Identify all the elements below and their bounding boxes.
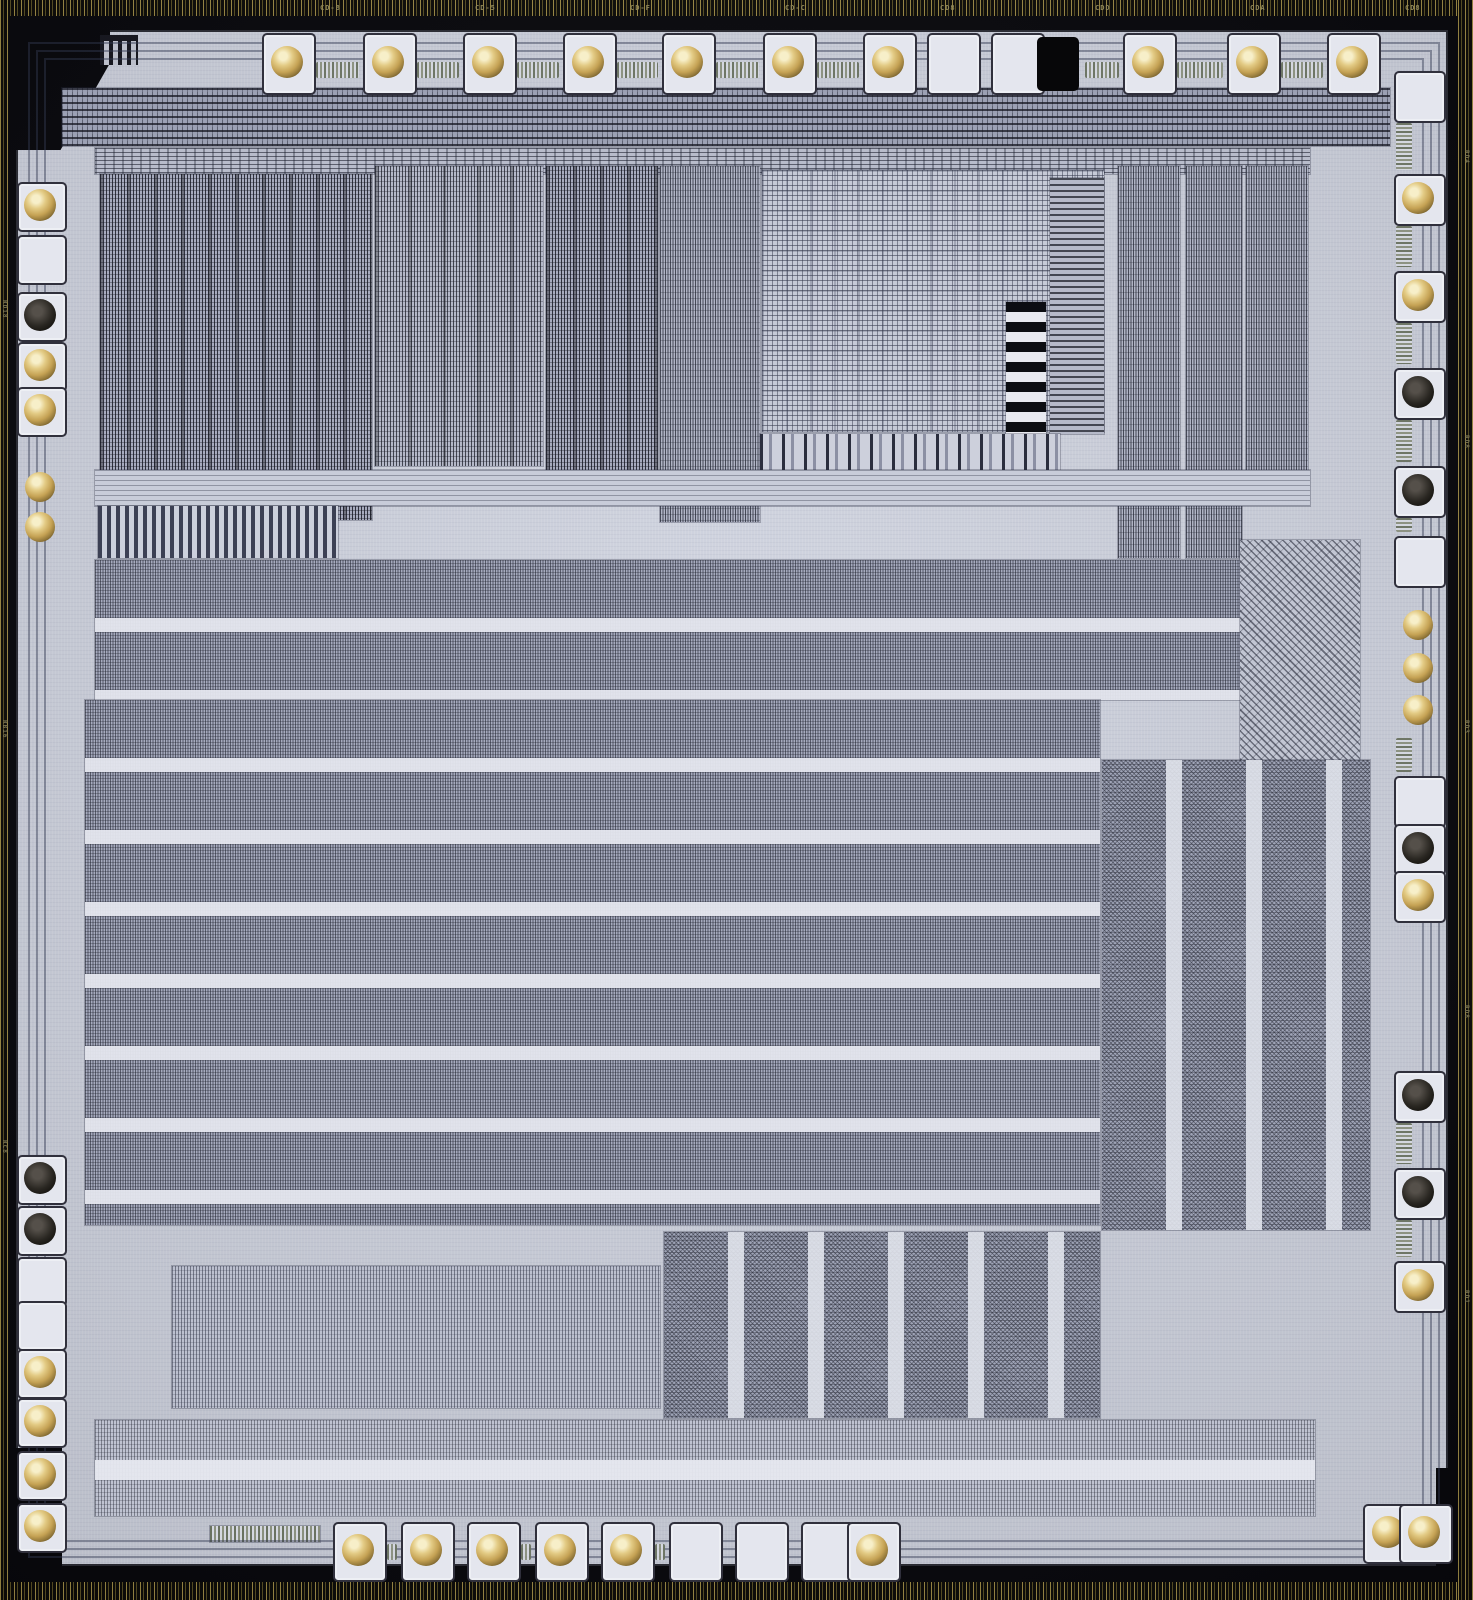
- dark-ball-bond: [24, 1162, 56, 1194]
- rom-driver-column: [1050, 178, 1104, 434]
- bond-pad: [17, 387, 67, 437]
- gold-ball-bond: [271, 46, 303, 78]
- test-structure: [100, 35, 138, 65]
- top-bus-band: [62, 88, 1390, 146]
- bond-pad: [17, 1155, 67, 1205]
- bond-pad: [662, 33, 716, 95]
- gold-ball-bond: [372, 46, 404, 78]
- gold-ball-bond: [24, 349, 56, 381]
- logic-upper-mid-a: [375, 166, 543, 466]
- bond-pad: [1227, 33, 1281, 95]
- bond-pad: [563, 33, 617, 95]
- bottom-bus-band: [95, 1420, 1315, 1516]
- bond-ball-gold: [1403, 653, 1433, 683]
- scribe-mark: CDA: [1250, 4, 1266, 12]
- gold-ball-bond: [410, 1534, 442, 1566]
- bond-pad: [333, 1522, 387, 1582]
- gold-ball-bond: [24, 1356, 56, 1388]
- gold-ball-bond: [1402, 182, 1434, 214]
- scribe-mark: CDD: [1095, 4, 1111, 12]
- protection-serpentine: [417, 62, 459, 78]
- bond-pad: [363, 33, 417, 95]
- bond-pad: [1394, 536, 1446, 588]
- scribe-mark: RD3: [1463, 720, 1470, 734]
- bond-ball-gold: [25, 472, 55, 502]
- main-logic-area: [85, 700, 1100, 1225]
- bond-pad: [17, 1398, 67, 1448]
- bond-pad: [1394, 1071, 1446, 1123]
- right-column-block-c: [1246, 166, 1308, 496]
- gold-ball-bond: [872, 46, 904, 78]
- protection-serpentine: [617, 62, 658, 78]
- bond-pad: [1394, 466, 1446, 518]
- bottom-mid-logic: [664, 1232, 1100, 1418]
- gold-ball-bond: [856, 1534, 888, 1566]
- protection-serpentine: [316, 62, 359, 78]
- ic-die-photograph: U8001 CD-8CD-5CD-FCD-CCD8CDDCDACD8RD18RB…: [0, 0, 1473, 1600]
- scribe-mark: CD-5: [475, 4, 496, 12]
- bond-pad: [535, 1522, 589, 1582]
- scribe-lane-bottom: [0, 1582, 1473, 1600]
- bond-pad: [17, 235, 67, 285]
- bond-pad: [1394, 368, 1446, 420]
- dark-ball-bond: [1402, 474, 1434, 506]
- rom-output-row: [760, 434, 1060, 472]
- protection-serpentine: [1396, 1220, 1412, 1257]
- gold-ball-bond: [472, 46, 504, 78]
- gold-ball-bond: [1132, 46, 1164, 78]
- rom-bitcell-column: [1006, 302, 1046, 434]
- protection-serpentine: [1396, 518, 1412, 532]
- gold-ball-bond: [1336, 46, 1368, 78]
- mid-routing-band: [95, 470, 1310, 506]
- bond-pad: [17, 1257, 67, 1307]
- bond-ball-gold: [25, 512, 55, 542]
- bond-pad: [1394, 871, 1446, 923]
- scribe-mark: RD18: [1, 300, 8, 318]
- scribe-mark: CD8: [940, 4, 956, 12]
- bond-pad: [601, 1522, 655, 1582]
- protection-serpentine: [1396, 123, 1412, 170]
- bond-ball-gold: [1403, 695, 1433, 725]
- logic-upper-left: [100, 174, 372, 520]
- protection-serpentine: [521, 1544, 531, 1560]
- scribe-lane-left: [0, 0, 8, 1600]
- gold-ball-bond: [610, 1534, 642, 1566]
- bond-pad: [1394, 1261, 1446, 1313]
- protection-serpentine: [716, 62, 759, 78]
- bond-pad: [17, 292, 67, 342]
- protection-serpentine: [1396, 738, 1412, 772]
- gold-ball-bond: [24, 394, 56, 426]
- protection-serpentine: [1396, 323, 1412, 364]
- scribe-mark: CD-F: [630, 4, 651, 12]
- protection-serpentine: [517, 62, 559, 78]
- bond-pad: [17, 1503, 67, 1553]
- bond-pad: [1394, 174, 1446, 226]
- bond-pad: [262, 33, 316, 95]
- gold-ball-bond: [24, 1458, 56, 1490]
- gold-ball-bond: [24, 1510, 56, 1542]
- scribe-mark: CD-C: [785, 4, 806, 12]
- protection-serpentine: [1177, 62, 1223, 78]
- dark-ball-bond: [1402, 376, 1434, 408]
- bond-pad: [467, 1522, 521, 1582]
- dark-ball-bond: [24, 299, 56, 331]
- scribe-mark: RB16: [1, 720, 8, 738]
- protection-serpentine: [1396, 226, 1412, 267]
- right-logic-area: [1102, 760, 1370, 1230]
- scribe-mark: CD8: [1405, 4, 1421, 12]
- bottom-serpentine: [210, 1526, 320, 1542]
- gold-ball-bond: [1402, 279, 1434, 311]
- gold-ball-bond: [24, 189, 56, 221]
- bond-pad: [17, 182, 67, 232]
- bond-pad: [1394, 271, 1446, 323]
- dark-ball-bond: [24, 1213, 56, 1245]
- protection-serpentine: [1396, 420, 1412, 462]
- bond-ball-gold: [1403, 610, 1433, 640]
- bond-pad: [401, 1522, 455, 1582]
- scribe-lane-right: [1458, 0, 1473, 1600]
- bond-pad: [927, 33, 981, 95]
- bond-pad: [17, 1349, 67, 1399]
- dark-ball-bond: [1402, 832, 1434, 864]
- gold-ball-bond: [1236, 46, 1268, 78]
- gold-ball-bond: [572, 46, 604, 78]
- bond-pad: [1327, 33, 1381, 95]
- bond-pad: [17, 1206, 67, 1256]
- bond-pad: [1394, 71, 1446, 123]
- bottom-left-array: [172, 1266, 660, 1408]
- bond-pad: [763, 33, 817, 95]
- gold-ball-bond: [671, 46, 703, 78]
- protection-serpentine: [1085, 62, 1119, 78]
- bond-pad: [1394, 776, 1446, 828]
- protection-serpentine: [655, 1544, 665, 1560]
- gold-ball-bond: [24, 1405, 56, 1437]
- scribe-mark: RC8: [1, 1140, 8, 1154]
- gold-ball-bond: [342, 1534, 374, 1566]
- gold-ball-bond: [772, 46, 804, 78]
- dark-ball-bond: [1402, 1079, 1434, 1111]
- bond-pad: [1399, 1504, 1453, 1564]
- scribe-mark: RD8: [1463, 435, 1470, 449]
- protection-serpentine: [1281, 62, 1323, 78]
- protection-serpentine: [387, 1544, 397, 1560]
- scribe-mark: RD8: [1463, 1005, 1470, 1019]
- gold-ball-bond: [1402, 1269, 1434, 1301]
- bond-pad: [863, 33, 917, 95]
- column-decoder: [660, 166, 760, 522]
- unused-pad-opening: [1037, 37, 1079, 91]
- mid-logic-band: [95, 560, 1310, 700]
- bond-pad: [1123, 33, 1177, 95]
- bond-pad: [17, 1301, 67, 1351]
- bond-pad: [735, 1522, 789, 1582]
- gold-ball-bond: [544, 1534, 576, 1566]
- bond-pad: [669, 1522, 723, 1582]
- protection-serpentine: [817, 62, 859, 78]
- bond-pad: [463, 33, 517, 95]
- logic-upper-mid-b: [546, 166, 658, 498]
- bond-pad: [1394, 1168, 1446, 1220]
- bond-pad: [847, 1522, 901, 1582]
- bond-pad: [17, 1451, 67, 1501]
- diagonal-fanout: [1240, 540, 1360, 760]
- scribe-mark: RD1: [1463, 1290, 1470, 1304]
- comb-structures: [98, 506, 338, 558]
- bond-pad: [17, 342, 67, 392]
- scribe-mark: RD4: [1463, 150, 1470, 164]
- protection-serpentine: [1396, 1123, 1412, 1164]
- gold-ball-bond: [1402, 879, 1434, 911]
- gold-ball-bond: [1408, 1516, 1440, 1548]
- bond-pad: [1394, 824, 1446, 876]
- scribe-mark: CD-8: [320, 4, 341, 12]
- gold-ball-bond: [476, 1534, 508, 1566]
- dark-ball-bond: [1402, 1176, 1434, 1208]
